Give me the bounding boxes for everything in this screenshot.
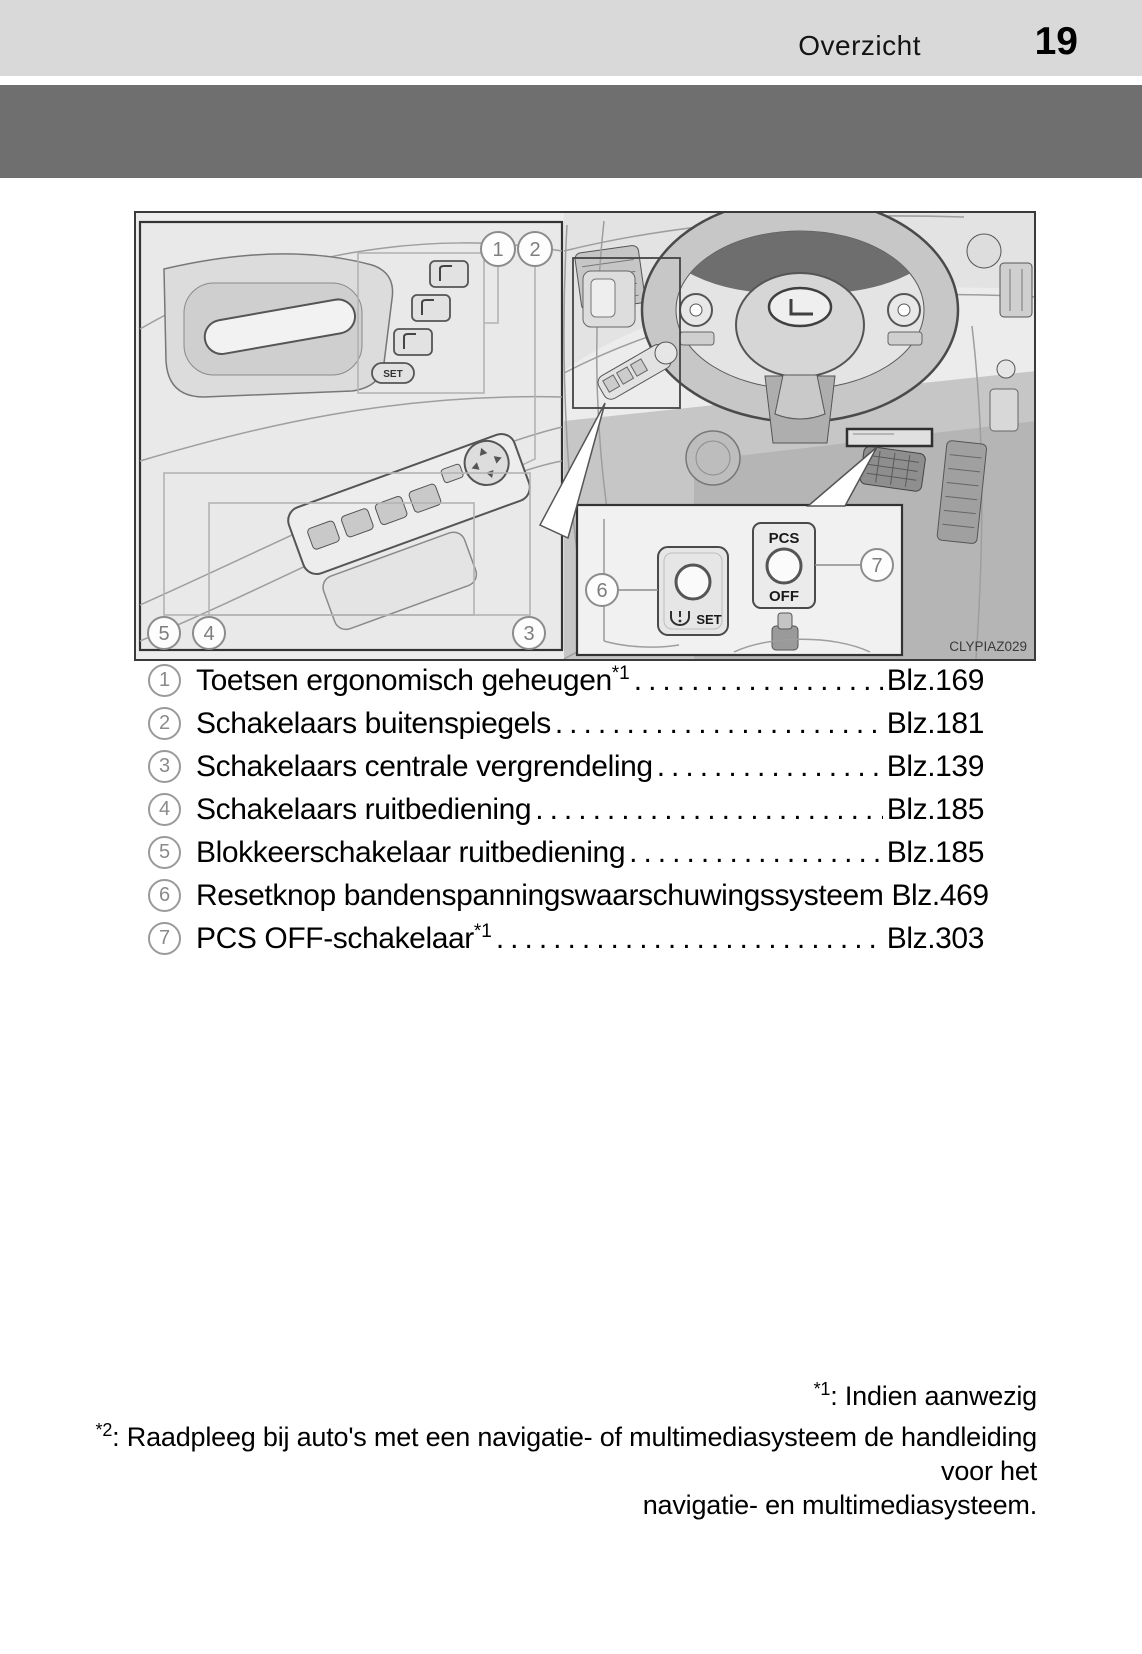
- legend-item-label: PCS OFF-schakelaar*1: [196, 921, 492, 956]
- column-trim-circle: [686, 431, 740, 485]
- legend-page-ref: Blz.185: [887, 836, 984, 870]
- pcs-switch-location: [847, 429, 932, 446]
- section-title: Overzicht: [798, 30, 921, 62]
- legend-row-2: 2 Schakelaars buitenspiegels Blz.181: [148, 702, 984, 745]
- dot-leader: [535, 793, 883, 827]
- dot-leader: [629, 836, 883, 870]
- figure-code: CLYPIAZ029: [949, 639, 1027, 654]
- legend-item-number: 5: [148, 836, 181, 869]
- legend-page-ref: Blz.469: [891, 879, 988, 913]
- legend-row-7: 7 PCS OFF-schakelaar*1 Blz.303: [148, 917, 984, 960]
- legend-row-5: 5 Blokkeerschakelaar ruitbediening Blz.1…: [148, 831, 984, 874]
- set-button-label: SET: [696, 612, 721, 627]
- callout-1: 1: [481, 232, 515, 266]
- dot-leader: [496, 922, 883, 956]
- svg-text:2: 2: [529, 239, 540, 261]
- footnotes: *1: Indien aanwezig *2: Raadpleeg bij au…: [57, 1372, 1037, 1522]
- legend-item-number: 7: [148, 922, 181, 955]
- chapter-divider-band: [0, 85, 1142, 178]
- inset-buttons-box: SET PCS OFF 6 7: [577, 505, 902, 655]
- legend-item-label: Toetsen ergonomisch geheugen*1: [196, 663, 630, 698]
- legend-item-label: Schakelaars ruitbediening: [196, 792, 531, 827]
- tpms-set-button-drawing: SET: [658, 547, 728, 635]
- legend-item-number: 3: [148, 750, 181, 783]
- manual-page: { "header": { "section_title": "Overzich…: [0, 0, 1142, 1654]
- legend-item-number: 1: [148, 664, 181, 697]
- legend-item-number: 2: [148, 707, 181, 740]
- pcs-off-button-drawing: PCS OFF: [753, 523, 815, 608]
- svg-text:7: 7: [871, 555, 882, 577]
- footnote-2-line-1: *2: Raadpleeg bij auto's met een navigat…: [57, 1413, 1037, 1488]
- callout-2: 2: [518, 232, 552, 266]
- legend-row-3: 3 Schakelaars centrale vergrendeling Blz…: [148, 745, 984, 788]
- callout-3: 3: [513, 617, 545, 649]
- legend-page-ref: Blz.169: [887, 664, 984, 698]
- legend-item-number: 6: [148, 879, 181, 912]
- svg-text:4: 4: [203, 623, 214, 645]
- svg-text:5: 5: [158, 623, 169, 645]
- legend-item-label: Resetknop bandenspanningswaarschuwingssy…: [196, 878, 883, 913]
- footnote-2-text: : Raadpleeg bij auto's met een navigatie…: [112, 1422, 1037, 1486]
- off-label: OFF: [769, 588, 799, 605]
- page-header-band: Overzicht 19: [0, 0, 1142, 76]
- car-interior-drawing: SET PCS OFF 6 7: [134, 211, 1036, 661]
- footnote-2-line-2: navigatie- en multimediasysteem.: [57, 1488, 1037, 1522]
- legend-page-ref: Blz.139: [887, 750, 984, 784]
- legend-item-label: Schakelaars centrale vergrendeling: [196, 749, 653, 784]
- footnote-2-marker: *2: [96, 1420, 113, 1440]
- legend-page-ref: Blz.181: [887, 707, 984, 741]
- door-panel-closeup: SET 5 4: [140, 222, 562, 650]
- legend-page-ref: Blz.303: [887, 922, 984, 956]
- legend-list: 1 Toetsen ergonomisch geheugen*1 Blz.169…: [148, 659, 984, 960]
- page-number: 19: [1035, 20, 1078, 64]
- lexus-logo: [769, 288, 831, 326]
- legend-row-4: 4 Schakelaars ruitbediening Blz.185: [148, 788, 984, 831]
- footnote-1-text: : Indien aanwezig: [830, 1381, 1037, 1411]
- callout-6: 6: [586, 574, 618, 606]
- figure-illustration: SET PCS OFF 6 7: [134, 211, 1036, 661]
- dot-leader: [634, 664, 883, 698]
- legend-item-label: Blokkeerschakelaar ruitbediening: [196, 835, 625, 870]
- dot-leader: [657, 750, 883, 784]
- dot-leader: [555, 707, 883, 741]
- callout-7: 7: [861, 549, 893, 581]
- footnote-1: *1: Indien aanwezig: [57, 1372, 1037, 1413]
- callout-4: 4: [193, 617, 225, 649]
- footnote-marker: *1: [612, 663, 630, 684]
- svg-text:6: 6: [596, 580, 607, 602]
- side-vent-knob: [967, 234, 1001, 268]
- callout-5: 5: [148, 617, 180, 649]
- legend-row-6: 6 Resetknop bandenspanningswaarschuwings…: [148, 874, 984, 917]
- door-set-label: SET: [383, 369, 402, 380]
- svg-text:1: 1: [492, 239, 503, 261]
- legend-item-number: 4: [148, 793, 181, 826]
- legend-page-ref: Blz.185: [887, 793, 984, 827]
- footnote-1-marker: *1: [814, 1379, 831, 1399]
- legend-item-label: Schakelaars buitenspiegels: [196, 706, 551, 741]
- pcs-label: PCS: [769, 530, 800, 547]
- svg-text:3: 3: [523, 623, 534, 645]
- legend-row-1: 1 Toetsen ergonomisch geheugen*1 Blz.169: [148, 659, 984, 702]
